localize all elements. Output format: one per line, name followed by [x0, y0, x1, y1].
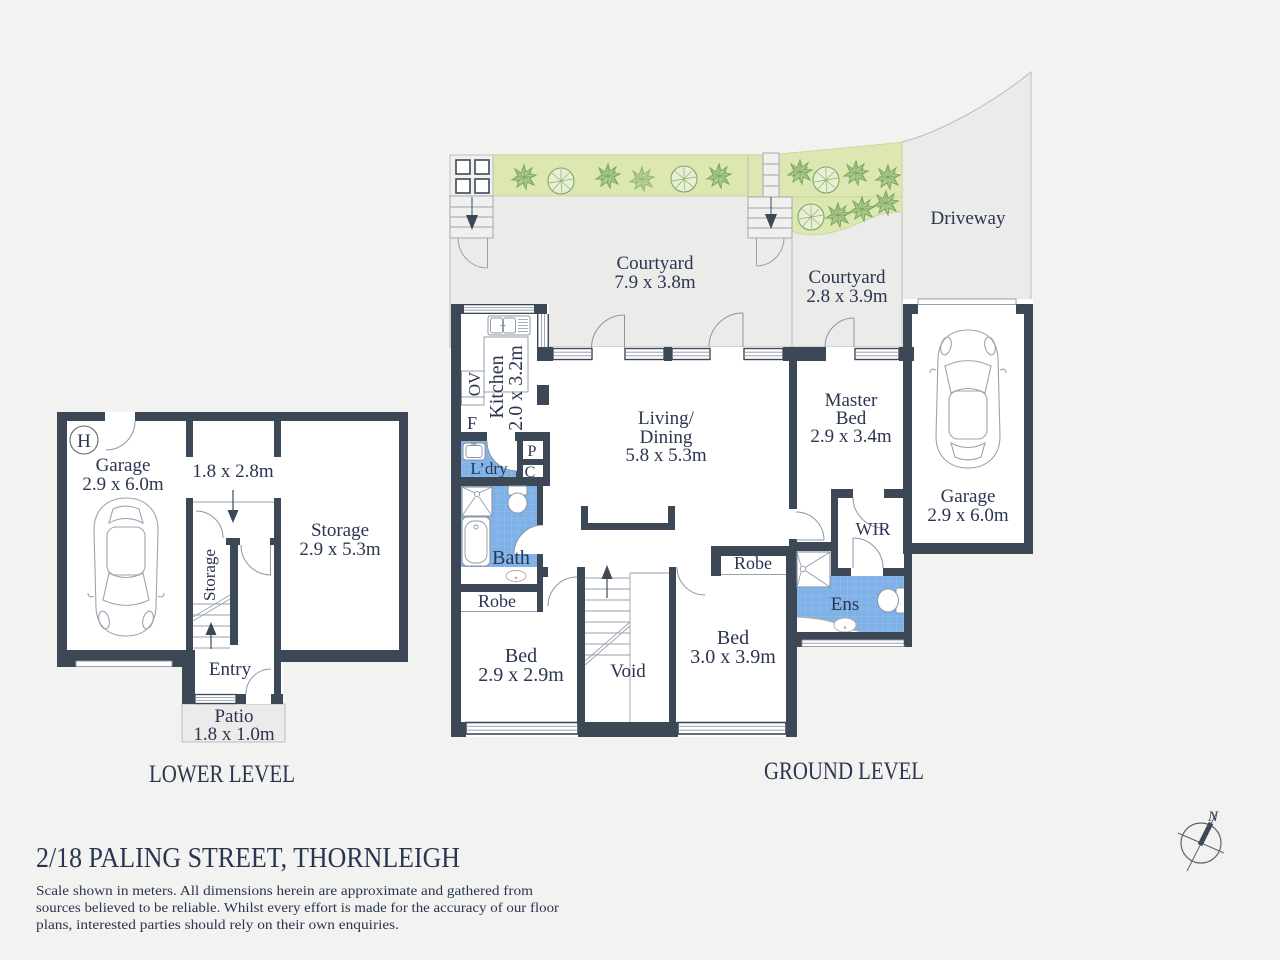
svg-text:7.9 x 3.8m: 7.9 x 3.8m	[614, 272, 696, 293]
svg-text:Entry: Entry	[209, 659, 252, 680]
svg-text:5.8 x 5.3m: 5.8 x 5.3m	[625, 445, 707, 466]
svg-text:Garage: Garage	[941, 486, 996, 507]
svg-text:P: P	[528, 443, 537, 460]
svg-text:2.9 x 2.9m: 2.9 x 2.9m	[478, 664, 564, 686]
svg-text:Robe: Robe	[734, 553, 772, 573]
svg-text:GROUND LEVEL: GROUND LEVEL	[764, 758, 924, 785]
svg-text:WIR: WIR	[856, 519, 891, 539]
svg-text:Void: Void	[610, 661, 646, 682]
svg-text:LOWER LEVEL: LOWER LEVEL	[149, 761, 295, 788]
svg-text:1.8 x 2.8m: 1.8 x 2.8m	[192, 461, 274, 482]
svg-text:2.8 x 3.9m: 2.8 x 3.9m	[806, 286, 888, 307]
svg-text:N: N	[1207, 809, 1219, 825]
svg-text:Driveway: Driveway	[931, 208, 1006, 229]
svg-text:C: C	[525, 464, 536, 481]
svg-text:2/18 PALING STREET, THORNLEIGH: 2/18 PALING STREET, THORNLEIGH	[36, 842, 460, 874]
svg-text:OV: OV	[465, 371, 484, 396]
svg-text:H: H	[77, 431, 91, 452]
svg-text:2.0 x 3.2m: 2.0 x 3.2m	[505, 345, 527, 431]
svg-text:F: F	[467, 413, 477, 433]
svg-text:2.9 x 6.0m: 2.9 x 6.0m	[927, 505, 1009, 526]
svg-text:Garage: Garage	[96, 455, 151, 476]
svg-text:Courtyard: Courtyard	[808, 267, 886, 288]
svg-text:sources believed to be reliab: sources believed to be reliable. Whilst …	[36, 901, 559, 916]
svg-text:Living/: Living/	[638, 408, 695, 429]
svg-text:Storage: Storage	[200, 549, 219, 601]
svg-text:Scale shown in meters. All dim: Scale shown in meters. All dimensions he…	[36, 884, 533, 899]
svg-text:1.8 x 1.0m: 1.8 x 1.0m	[193, 724, 275, 745]
svg-text:2.9 x 6.0m: 2.9 x 6.0m	[82, 474, 164, 495]
svg-text:plans, interested parties shou: plans, interested parties should rely on…	[36, 918, 399, 933]
svg-text:2.9 x 5.3m: 2.9 x 5.3m	[299, 539, 381, 560]
svg-text:Storage: Storage	[311, 520, 369, 541]
svg-text:Courtyard: Courtyard	[616, 253, 694, 274]
svg-text:Robe: Robe	[478, 591, 516, 611]
svg-text:3.0 x 3.9m: 3.0 x 3.9m	[690, 646, 776, 668]
svg-text:2.9 x 3.4m: 2.9 x 3.4m	[810, 426, 892, 447]
svg-text:Ens: Ens	[831, 594, 860, 615]
svg-text:Bath: Bath	[492, 547, 530, 569]
svg-text:L’dry: L’dry	[470, 459, 508, 478]
